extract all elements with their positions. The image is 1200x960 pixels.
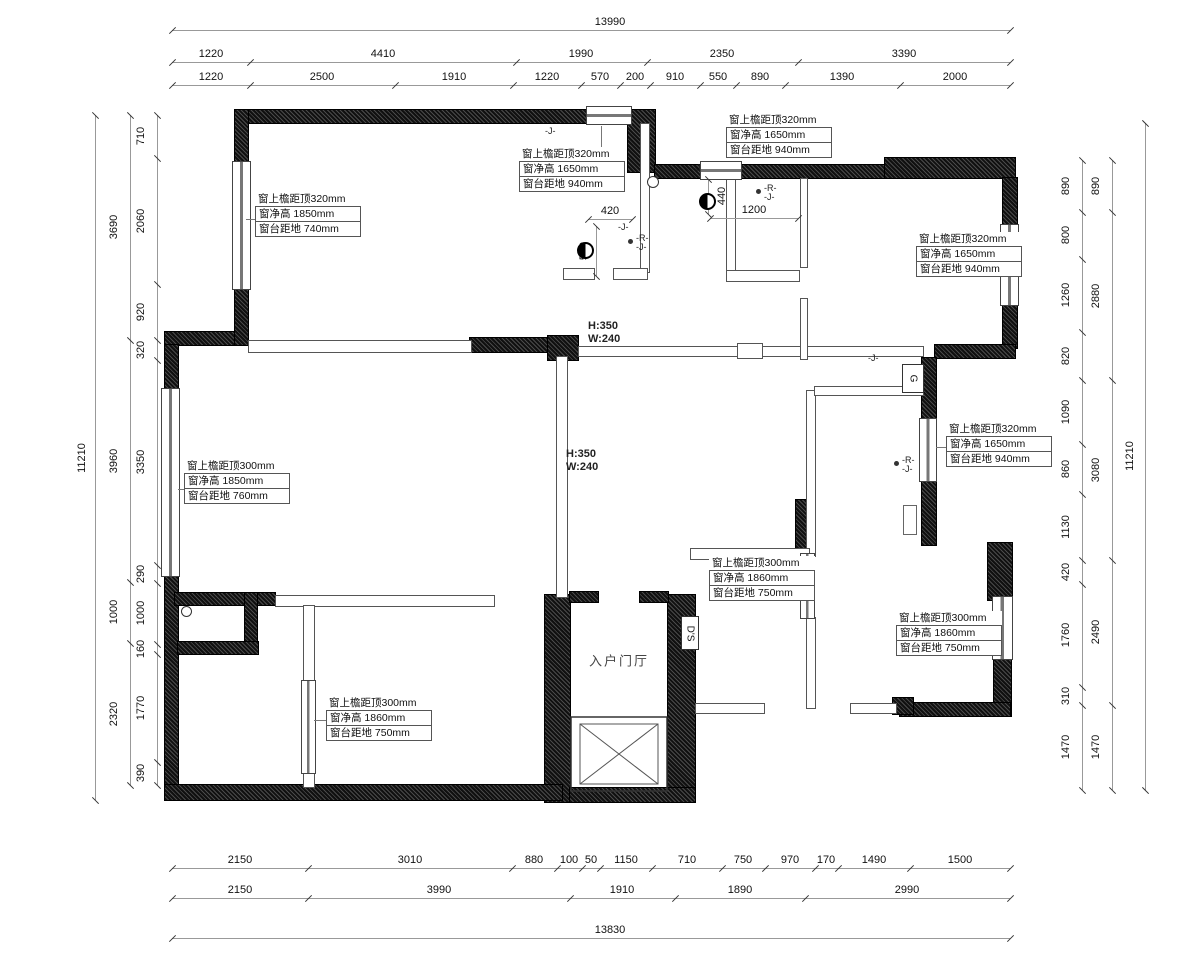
dim-tick	[513, 59, 520, 66]
annotation-line: 窗台距地 940mm	[726, 142, 832, 158]
beam-height: H:350	[588, 320, 620, 333]
dim-tick	[1079, 491, 1086, 498]
dim-tick	[305, 865, 312, 872]
partition-wall	[613, 268, 648, 280]
dim-label: 1220	[199, 71, 223, 83]
leader-line	[314, 720, 326, 721]
dim-label: 1130	[1060, 515, 1072, 539]
dim-tick	[782, 82, 789, 89]
dim-label: 50	[585, 854, 597, 866]
wall-segment	[640, 592, 668, 602]
annotation-line: 窗台距地 940mm	[946, 451, 1052, 467]
dim-label: 310	[1060, 687, 1072, 705]
dim-label: 1500	[948, 854, 972, 866]
j-marker: -J-	[618, 222, 629, 232]
dim-tick	[247, 59, 254, 66]
dim-tick	[719, 865, 726, 872]
dim-tick	[1007, 82, 1014, 89]
dim-tick	[510, 82, 517, 89]
dim-tick	[154, 281, 161, 288]
dim-tick	[1079, 209, 1086, 216]
dim-tick	[597, 865, 604, 872]
dim-label: 1220	[199, 48, 223, 60]
dim-tick	[169, 82, 176, 89]
annotation-line: 窗上檐距顶320mm	[726, 113, 832, 128]
wall-segment	[988, 543, 1012, 600]
circle-symbol	[181, 606, 192, 617]
dim-label: 710	[678, 854, 696, 866]
dim-tick	[579, 865, 586, 872]
dim-tick	[795, 59, 802, 66]
dim-label: 1090	[1060, 400, 1072, 424]
dim-line-right-total	[1145, 123, 1146, 790]
drain-symbol	[699, 193, 716, 210]
dim-label: 390	[135, 764, 147, 782]
dim-tick	[1079, 702, 1086, 709]
dim-label-440: 440	[716, 187, 728, 205]
annotation-line: 窗上檐距顶300mm	[326, 696, 432, 711]
dim-label: 1910	[442, 71, 466, 83]
dim-label: 2320	[108, 702, 120, 726]
dim-tick	[154, 155, 161, 162]
beam-width: W:240	[566, 461, 598, 474]
floor-plan-canvas: 13990 1220 4410 1990 2350 3390 1220 2500…	[0, 0, 1200, 960]
rj-marker: -R- -J-	[764, 184, 777, 202]
dim-line-left-inner	[157, 115, 158, 785]
dim-tick	[1007, 865, 1014, 872]
dim-tick	[1079, 557, 1086, 564]
dim-tick	[1079, 256, 1086, 263]
dim-label: 11210	[1124, 441, 1136, 471]
circle-symbol	[647, 176, 659, 188]
dim-line-1200	[710, 218, 798, 219]
dim-tick	[1079, 441, 1086, 448]
beam-note: H:350 W:240	[588, 320, 620, 346]
dim-line-top-row2	[172, 62, 1010, 63]
dim-label: 820	[1060, 347, 1072, 365]
dim-label: 860	[1060, 460, 1072, 478]
annotation-line: 窗上檐距顶300mm	[184, 459, 290, 474]
dim-tick	[169, 895, 176, 902]
dim-tick	[644, 59, 651, 66]
dim-tick	[629, 216, 636, 223]
dim-label: 3350	[135, 450, 147, 474]
dim-tick	[1079, 329, 1086, 336]
dim-tick	[1079, 377, 1086, 384]
dim-tick	[169, 935, 176, 942]
dim-label: 550	[709, 71, 727, 83]
dim-tick	[154, 782, 161, 789]
dim-tick	[154, 337, 161, 344]
dim-tick	[154, 357, 161, 364]
dim-label: 1910	[610, 884, 634, 896]
dim-label: 970	[781, 854, 799, 866]
dim-line-top-total	[172, 30, 1010, 31]
dim-label: 1470	[1060, 735, 1072, 759]
window-symbol	[586, 106, 632, 125]
dim-line-570	[596, 226, 597, 276]
dim-tick	[578, 82, 585, 89]
dim-label: 100	[560, 854, 578, 866]
dim-tick	[1007, 895, 1014, 902]
dim-tick	[247, 82, 254, 89]
j-marker: -J-	[868, 353, 879, 363]
annotation-line: 窗净高 1650mm	[726, 127, 832, 143]
dim-label: 11210	[76, 443, 88, 473]
wall-segment	[885, 158, 1015, 178]
j-marker: -J	[693, 163, 701, 173]
dim-label: 890	[751, 71, 769, 83]
window-annotation: 窗上檐距顶320mm 窗净高 1650mm 窗台距地 940mm	[916, 232, 1022, 277]
dim-label-1200: 1200	[742, 204, 766, 216]
dim-label-420: 420	[601, 205, 619, 217]
dim-label: 2000	[943, 71, 967, 83]
leader-line	[936, 447, 946, 448]
annotation-line: 窗净高 1850mm	[184, 473, 290, 489]
dim-line-left-total	[95, 115, 96, 800]
fixture-symbol	[903, 505, 917, 535]
dim-label: 2060	[135, 209, 147, 233]
dim-label: 1000	[135, 601, 147, 625]
dim-tick	[1142, 120, 1149, 127]
dim-tick	[835, 865, 842, 872]
partition-wall	[248, 340, 472, 353]
dim-tick	[1007, 27, 1014, 34]
dim-tick	[802, 895, 809, 902]
dim-label: 3080	[1090, 458, 1102, 482]
dim-line-bottom-row2	[172, 898, 1010, 899]
dim-tick	[554, 865, 561, 872]
dim-label: 2150	[228, 884, 252, 896]
partition-wall	[556, 356, 568, 598]
dim-tick	[1079, 684, 1086, 691]
annotation-line: 窗台距地 760mm	[184, 488, 290, 504]
window-annotation: 窗上檐距顶300mm 窗净高 1860mm 窗台距地 750mm	[709, 556, 815, 601]
window-annotation: 窗上檐距顶320mm 窗净高 1850mm 窗台距地 740mm	[255, 192, 361, 237]
dim-tick	[127, 337, 134, 344]
dim-label: 910	[666, 71, 684, 83]
dim-tick	[649, 865, 656, 872]
dim-label: 3690	[108, 215, 120, 239]
dim-label: 3390	[892, 48, 916, 60]
window-symbol	[232, 161, 251, 290]
dim-label: 1000	[108, 600, 120, 624]
annotation-line: 窗台距地 750mm	[896, 640, 1002, 656]
wall-segment	[175, 593, 275, 605]
dim-line-bottom-row1	[172, 868, 1010, 869]
dim-line-bottom-total	[172, 938, 1010, 939]
dim-tick	[707, 215, 714, 222]
annotation-line: 窗上檐距顶320mm	[519, 147, 625, 162]
dim-label: 290	[135, 565, 147, 583]
dim-tick	[1079, 157, 1086, 164]
dim-tick	[154, 580, 161, 587]
dim-tick	[762, 865, 769, 872]
beam-note: H:350 W:240	[566, 448, 598, 474]
j-marker: -J-	[545, 126, 556, 136]
dim-tick	[812, 865, 819, 872]
dim-label: 200	[626, 71, 644, 83]
dim-line-left-mid	[130, 115, 131, 785]
dim-label: 2350	[710, 48, 734, 60]
dim-tick	[127, 782, 134, 789]
dim-label: 1760	[1060, 623, 1072, 647]
dim-label: 1770	[135, 696, 147, 720]
dim-line-right-inner	[1082, 160, 1083, 790]
leader-line	[601, 126, 602, 147]
partition-wall	[800, 178, 808, 268]
dim-line-top-row3	[172, 85, 1010, 86]
beam-width: W:240	[588, 333, 620, 346]
dim-tick	[1079, 787, 1086, 794]
dim-tick	[647, 82, 654, 89]
dim-label: 1150	[614, 854, 638, 866]
dim-tick	[1109, 702, 1116, 709]
annotation-line: 窗上檐距顶300mm	[709, 556, 815, 571]
annotation-line: 窗上檐距顶320mm	[946, 422, 1052, 437]
partition-wall	[806, 617, 816, 709]
dim-label: 1220	[535, 71, 559, 83]
annotation-line: 窗净高 1650mm	[519, 161, 625, 177]
dim-label: 880	[525, 854, 543, 866]
dim-tick	[897, 82, 904, 89]
dim-label: 1890	[728, 884, 752, 896]
dim-tick	[593, 223, 600, 230]
dim-tick	[567, 895, 574, 902]
dim-tick	[907, 865, 914, 872]
partition-wall	[800, 298, 808, 360]
wall-segment	[545, 595, 570, 802]
dim-tick	[305, 895, 312, 902]
dim-tick	[169, 865, 176, 872]
annotation-line: 窗净高 1860mm	[326, 710, 432, 726]
dim-label: 160	[135, 640, 147, 658]
g-label-text: G	[908, 375, 919, 383]
annotation-line: 窗上檐距顶320mm	[916, 232, 1022, 247]
dim-label: 3010	[398, 854, 422, 866]
wall-segment	[570, 592, 598, 602]
dim-label: 710	[135, 127, 147, 145]
window-annotation: 窗上檐距顶320mm 窗净高 1650mm 窗台距地 940mm	[946, 422, 1052, 467]
dim-tick	[509, 865, 516, 872]
wall-segment	[235, 110, 633, 123]
dim-label: 1990	[569, 48, 593, 60]
dim-label: 890	[1090, 177, 1102, 195]
dim-tick	[1142, 787, 1149, 794]
dim-label: 3960	[108, 449, 120, 473]
dim-label: 13990	[595, 16, 626, 28]
dim-tick	[392, 82, 399, 89]
annotation-line: 窗上檐距顶300mm	[896, 611, 1002, 626]
dim-tick	[169, 27, 176, 34]
dim-tick	[154, 112, 161, 119]
annotation-line: 窗台距地 750mm	[326, 725, 432, 741]
annotation-line: 窗净高 1650mm	[946, 436, 1052, 452]
dim-tick	[127, 579, 134, 586]
dim-label: 800	[1060, 226, 1072, 244]
window-annotation: 窗上檐距顶300mm 窗净高 1860mm 窗台距地 750mm	[896, 611, 1002, 656]
partition-wall	[806, 390, 816, 557]
annotation-line: 窗净高 1650mm	[916, 246, 1022, 262]
dim-label: 170	[817, 854, 835, 866]
annotation-line: 窗净高 1850mm	[255, 206, 361, 222]
window-symbol	[161, 388, 180, 577]
window-symbol	[919, 418, 937, 482]
window-symbol	[301, 680, 316, 774]
annotation-line: 窗台距地 740mm	[255, 221, 361, 237]
j-label: -J-	[764, 193, 777, 202]
ds-label-text: D'S	[685, 625, 696, 641]
dim-tick	[1109, 209, 1116, 216]
dim-tick	[585, 216, 592, 223]
dim-label: 2500	[310, 71, 334, 83]
dim-label: 3990	[427, 884, 451, 896]
ds-label: D'S	[681, 616, 699, 650]
dim-line-420	[588, 219, 632, 220]
dim-tick	[1007, 935, 1014, 942]
dim-tick	[1109, 377, 1116, 384]
rj-marker: -R- -J-	[636, 234, 649, 252]
window-annotation: 窗上檐距顶320mm 窗净高 1650mm 窗台距地 940mm	[726, 113, 832, 158]
j-label: -J-	[636, 243, 649, 252]
dim-label: 2990	[895, 884, 919, 896]
window-annotation: 窗上檐距顶300mm 窗净高 1850mm 窗台距地 760mm	[184, 459, 290, 504]
dim-tick	[92, 112, 99, 119]
dim-label: 1470	[1090, 735, 1102, 759]
partition-wall	[695, 703, 765, 714]
partition-wall	[850, 703, 897, 714]
dim-tick	[1109, 557, 1116, 564]
elevator-shaft	[570, 716, 668, 792]
annotation-line: 窗台距地 940mm	[519, 176, 625, 192]
wall-segment	[935, 345, 1015, 358]
dim-label: 1490	[862, 854, 886, 866]
dim-label: 750	[734, 854, 752, 866]
dim-tick	[154, 562, 161, 569]
dim-label: 4410	[371, 48, 395, 60]
dim-line-right-mid	[1112, 160, 1113, 790]
annotation-line: 窗台距地 940mm	[916, 261, 1022, 277]
dim-label: 320	[135, 341, 147, 359]
dim-tick	[1109, 157, 1116, 164]
wall-segment	[900, 703, 1010, 716]
dim-tick	[672, 895, 679, 902]
dim-tick	[617, 82, 624, 89]
dim-tick	[733, 82, 740, 89]
dim-label: 1390	[830, 71, 854, 83]
leader-line	[246, 219, 255, 220]
dim-tick	[127, 112, 134, 119]
dim-tick	[169, 59, 176, 66]
partition-wall	[563, 268, 595, 280]
dim-tick	[154, 759, 161, 766]
dim-label: 2150	[228, 854, 252, 866]
annotation-line: 窗台距地 750mm	[709, 585, 815, 601]
partition-wall	[303, 605, 315, 684]
partition-wall	[737, 343, 763, 359]
dim-label: 890	[1060, 177, 1072, 195]
dim-tick	[92, 797, 99, 804]
annotation-line: 窗上檐距顶320mm	[255, 192, 361, 207]
annotation-line: 窗净高 1860mm	[896, 625, 1002, 641]
wall-segment	[165, 785, 562, 800]
dim-tick	[154, 641, 161, 648]
dim-tick	[1007, 59, 1014, 66]
wall-segment	[178, 642, 258, 654]
dim-tick	[127, 640, 134, 647]
dim-tick	[1079, 581, 1086, 588]
window-annotation: 窗上檐距顶320mm 窗净高 1650mm 窗台距地 940mm	[519, 147, 625, 192]
j-label: -J-	[902, 465, 915, 474]
rj-marker: -R- -J-	[902, 456, 915, 474]
dim-tick	[1109, 787, 1116, 794]
dim-label: 2490	[1090, 620, 1102, 644]
dim-label: 920	[135, 303, 147, 321]
partition-wall	[726, 270, 800, 282]
annotation-line: 窗净高 1860mm	[709, 570, 815, 586]
drain-symbol	[577, 242, 594, 259]
wall-segment	[655, 165, 887, 178]
dim-label: 1260	[1060, 283, 1072, 307]
dim-label: 570	[591, 71, 609, 83]
dim-label: 13830	[595, 924, 626, 936]
room-label-entry-hall: 入户门厅	[589, 651, 649, 670]
dim-tick	[154, 651, 161, 658]
beam-height: H:350	[566, 448, 598, 461]
g-label: G	[902, 364, 924, 393]
dim-tick	[697, 82, 704, 89]
dim-label: 2880	[1090, 284, 1102, 308]
window-annotation: 窗上檐距顶300mm 窗净高 1860mm 窗台距地 750mm	[326, 696, 432, 741]
dim-label: 420	[1060, 563, 1072, 581]
